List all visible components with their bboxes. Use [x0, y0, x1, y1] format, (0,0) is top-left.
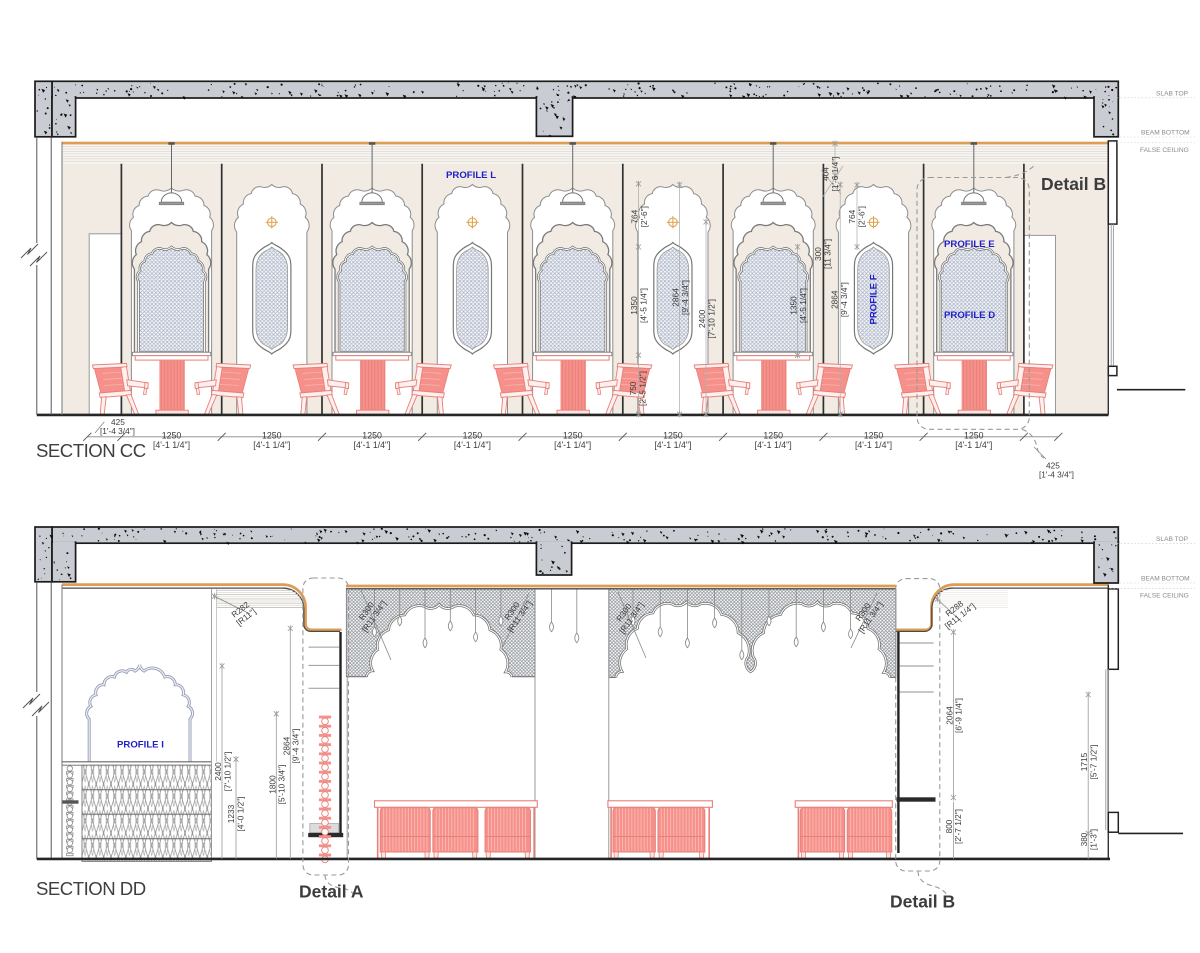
svg-text:PROFILE I: PROFILE I — [117, 740, 164, 751]
svg-text:[4'-1 1/4"]: [4'-1 1/4"] — [755, 440, 792, 450]
svg-text:FALSE CEILING: FALSE CEILING — [1140, 147, 1189, 154]
svg-text:SECTION CC: SECTION CC — [36, 440, 146, 461]
svg-text:[1'-3"]: [1'-3"] — [1089, 829, 1099, 850]
svg-text:[5'-10 3/4"]: [5'-10 3/4"] — [277, 765, 287, 805]
svg-text:[4'-1 1/4"]: [4'-1 1/4"] — [554, 440, 591, 450]
svg-text:[5'-7 1/2"]: [5'-7 1/2"] — [1089, 745, 1099, 780]
svg-text:[9'-4 3/4"]: [9'-4 3/4"] — [680, 280, 690, 315]
svg-text:Detail B: Detail B — [1041, 174, 1106, 194]
svg-text:BEAM BOTTOM: BEAM BOTTOM — [1141, 130, 1190, 137]
svg-text:SECTION DD: SECTION DD — [36, 878, 146, 899]
svg-text:[1'-4 3/4"]: [1'-4 3/4"] — [100, 426, 135, 436]
svg-text:PROFILE L: PROFILE L — [446, 170, 496, 181]
svg-text:[4'-5 1/4"]: [4'-5 1/4"] — [638, 288, 648, 323]
svg-text:[2'-6"]: [2'-6"] — [856, 206, 866, 227]
svg-text:[1'-4 3/4"]: [1'-4 3/4"] — [1039, 470, 1074, 480]
svg-text:[4'-1 1/4"]: [4'-1 1/4"] — [454, 440, 491, 450]
svg-text:[7'-10 1/2"]: [7'-10 1/2"] — [706, 299, 716, 339]
svg-text:Detail B: Detail B — [890, 892, 955, 912]
svg-text:[4'-1 1/4"]: [4'-1 1/4"] — [153, 440, 190, 450]
svg-text:PROFILE D: PROFILE D — [944, 310, 995, 321]
svg-text:[4'-5 1/4"]: [4'-5 1/4"] — [798, 288, 808, 323]
svg-text:[6'-9 1/4"]: [6'-9 1/4"] — [954, 698, 964, 733]
svg-text:[7'-10 1/2"]: [7'-10 1/2"] — [222, 752, 232, 792]
svg-text:[9'-4 3/4"]: [9'-4 3/4"] — [839, 282, 849, 317]
svg-text:PROFILE F: PROFILE F — [869, 274, 880, 324]
svg-text:[9'-4 3/4"]: [9'-4 3/4"] — [291, 729, 301, 764]
svg-text:[4'-0 1/2"]: [4'-0 1/2"] — [235, 797, 245, 832]
svg-text:[4'-1 1/4"]: [4'-1 1/4"] — [354, 440, 391, 450]
svg-text:SLAB TOP: SLAB TOP — [1156, 536, 1189, 543]
svg-text:[2'-6"]: [2'-6"] — [639, 206, 649, 227]
svg-text:Detail A: Detail A — [299, 882, 364, 902]
svg-text:[1'-6 1/4"]: [1'-6 1/4"] — [830, 157, 840, 192]
svg-text:[4'-1 1/4"]: [4'-1 1/4"] — [253, 440, 290, 450]
svg-text:[4'-1 1/4"]: [4'-1 1/4"] — [955, 440, 992, 450]
svg-text:[2'-5 1/2"]: [2'-5 1/2"] — [637, 371, 647, 406]
svg-text:[4'-1 1/4"]: [4'-1 1/4"] — [855, 440, 892, 450]
svg-text:[4'-1 1/4"]: [4'-1 1/4"] — [654, 440, 691, 450]
svg-text:FALSE CEILING: FALSE CEILING — [1140, 593, 1189, 600]
svg-text:BEAM BOTTOM: BEAM BOTTOM — [1141, 575, 1190, 582]
svg-text:PROFILE E: PROFILE E — [944, 239, 995, 250]
svg-text:[2'-7 1/2"]: [2'-7 1/2"] — [953, 809, 963, 844]
svg-text:[11 3/4"]: [11 3/4"] — [822, 239, 832, 269]
svg-text:SLAB TOP: SLAB TOP — [1156, 90, 1189, 97]
